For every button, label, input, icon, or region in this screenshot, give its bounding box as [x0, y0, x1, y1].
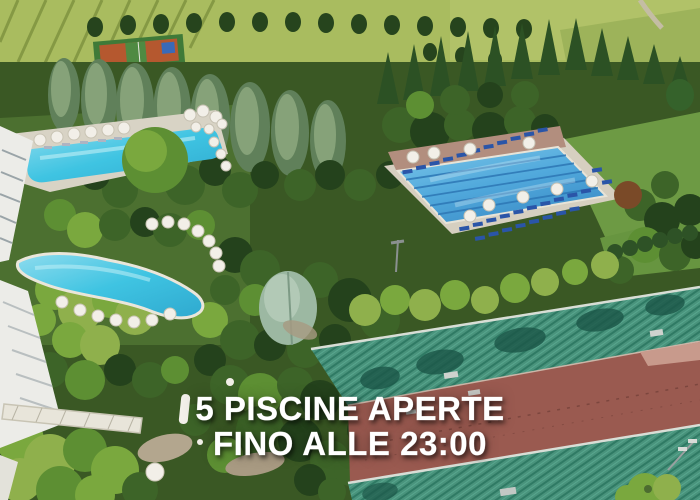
- promo-line-2: FINO ALLE 23:00: [0, 426, 700, 461]
- aerial-photo: 5 PISCINE APERTE FINO ALLE 23:00: [0, 0, 700, 500]
- promo-text: 5 PISCINE APERTE FINO ALLE 23:00: [0, 391, 700, 461]
- big-round-tree: [122, 127, 188, 193]
- promo-line-1: 5 PISCINE APERTE: [0, 391, 700, 426]
